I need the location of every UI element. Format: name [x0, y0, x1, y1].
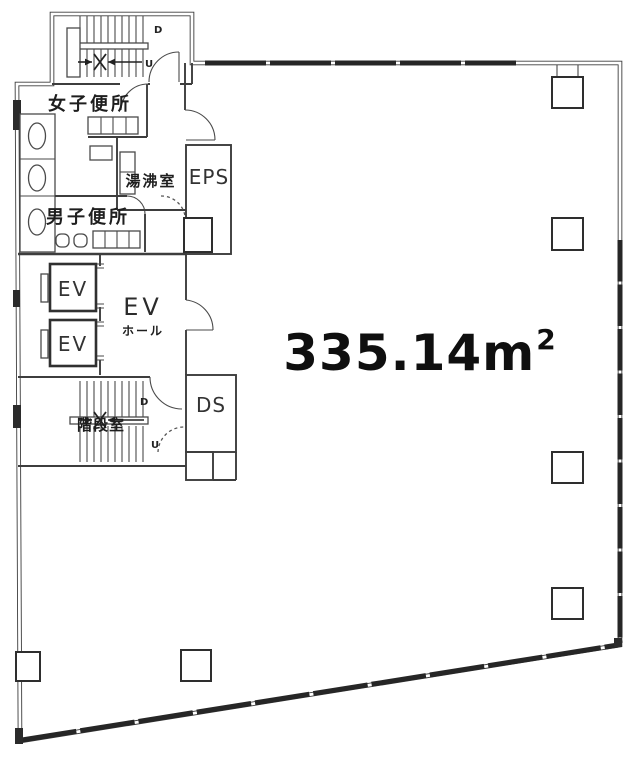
label-eps: EPS — [189, 165, 229, 189]
pipe-space-box — [90, 146, 112, 160]
floor-area-value: 335.14m — [283, 324, 535, 382]
toilet-icon — [29, 123, 46, 149]
toilet-icon — [29, 209, 46, 235]
column — [552, 218, 583, 250]
stair-bottom-down-label: D — [140, 397, 148, 408]
elevator-2-bracket — [41, 330, 48, 358]
stair-top-up-label: U — [145, 59, 153, 70]
urinal-icon — [56, 234, 69, 247]
label-elevator-1: EV — [58, 277, 88, 301]
shaft-column — [184, 218, 212, 252]
label-stairwell: 階段室 — [77, 416, 125, 434]
label-elevator-2: EV — [58, 332, 88, 356]
column — [552, 77, 583, 108]
floor-plan-svg: D U 女子便所 男子便所 湯沸室 — [0, 0, 641, 761]
toilet-icon — [29, 165, 46, 191]
label-mens-toilet: 男子便所 — [46, 206, 130, 228]
label-ev-hall: EV — [123, 293, 163, 321]
floor-area-text: 335.14m2 — [283, 323, 557, 382]
label-ds: DS — [196, 393, 226, 417]
column — [181, 650, 211, 681]
stair-top-down-label: D — [154, 25, 162, 36]
column — [16, 652, 40, 681]
label-kitchenette: 湯沸室 — [125, 172, 176, 190]
area-label: 335.14m2 — [283, 323, 557, 382]
label-ev-hall-2: ホール — [122, 324, 164, 338]
floor-plan: D U 女子便所 男子便所 湯沸室 — [0, 0, 641, 761]
column — [552, 588, 583, 619]
floor-area-superscript: 2 — [536, 323, 556, 356]
column — [552, 452, 583, 483]
elevator-1-bracket — [41, 274, 48, 302]
urinal-icon — [74, 234, 87, 247]
label-womens-toilet: 女子便所 — [48, 93, 132, 115]
